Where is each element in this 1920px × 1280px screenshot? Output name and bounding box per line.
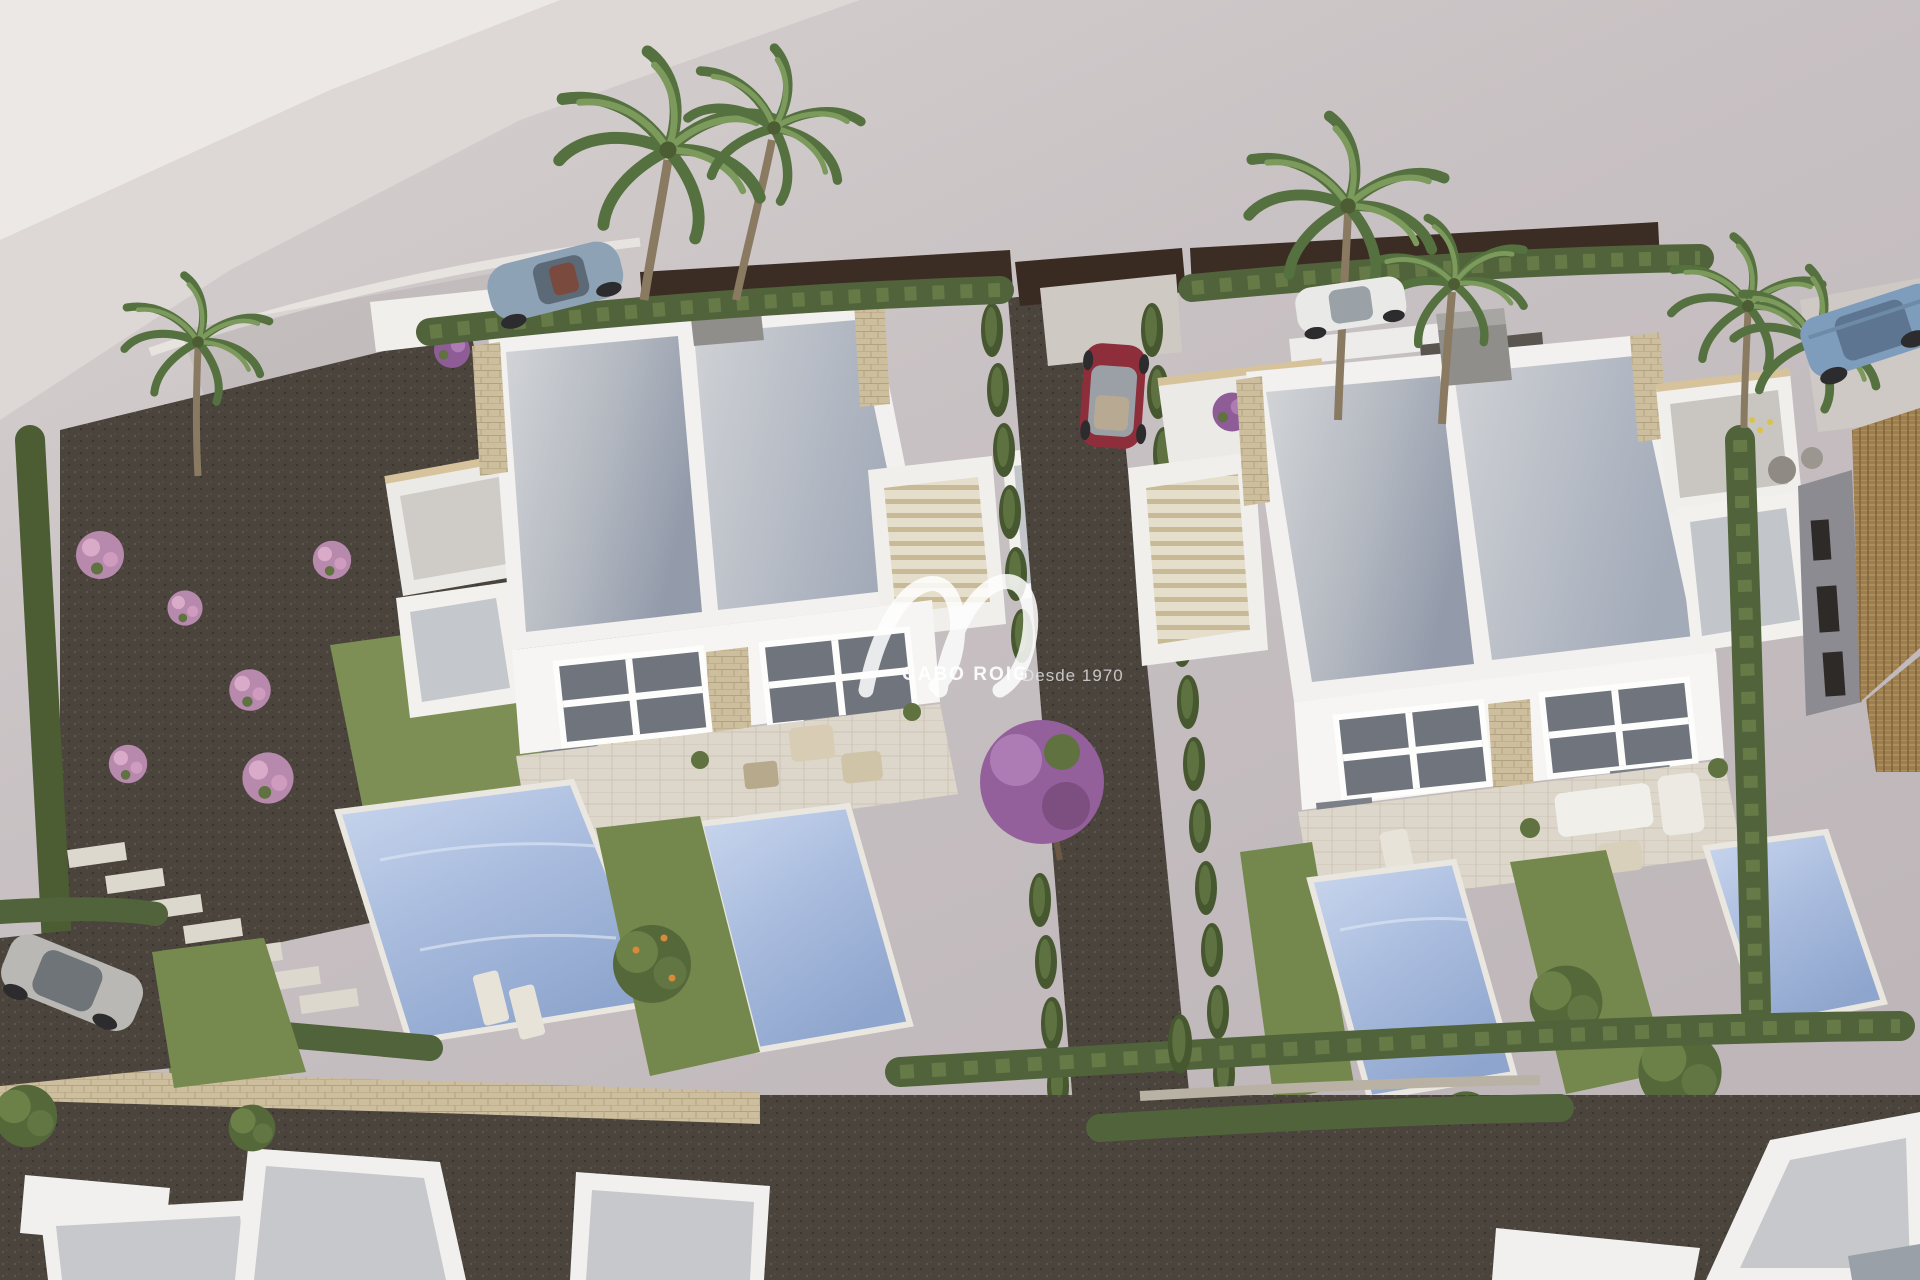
roof-stairs [884, 477, 990, 614]
roof-panel-left [506, 336, 702, 632]
scene-illustration [0, 0, 1920, 1280]
stone-pillar [854, 299, 890, 407]
decor-rock [1801, 447, 1823, 469]
palm-trunk [197, 348, 199, 476]
car-red [1077, 342, 1152, 450]
hedge-row [0, 909, 156, 914]
orange-tree [613, 925, 691, 1003]
roof-stairs [1146, 474, 1250, 644]
decor-rock [1768, 456, 1796, 484]
render-scene: CABO ROIG Desde 1970 [0, 0, 1920, 1280]
